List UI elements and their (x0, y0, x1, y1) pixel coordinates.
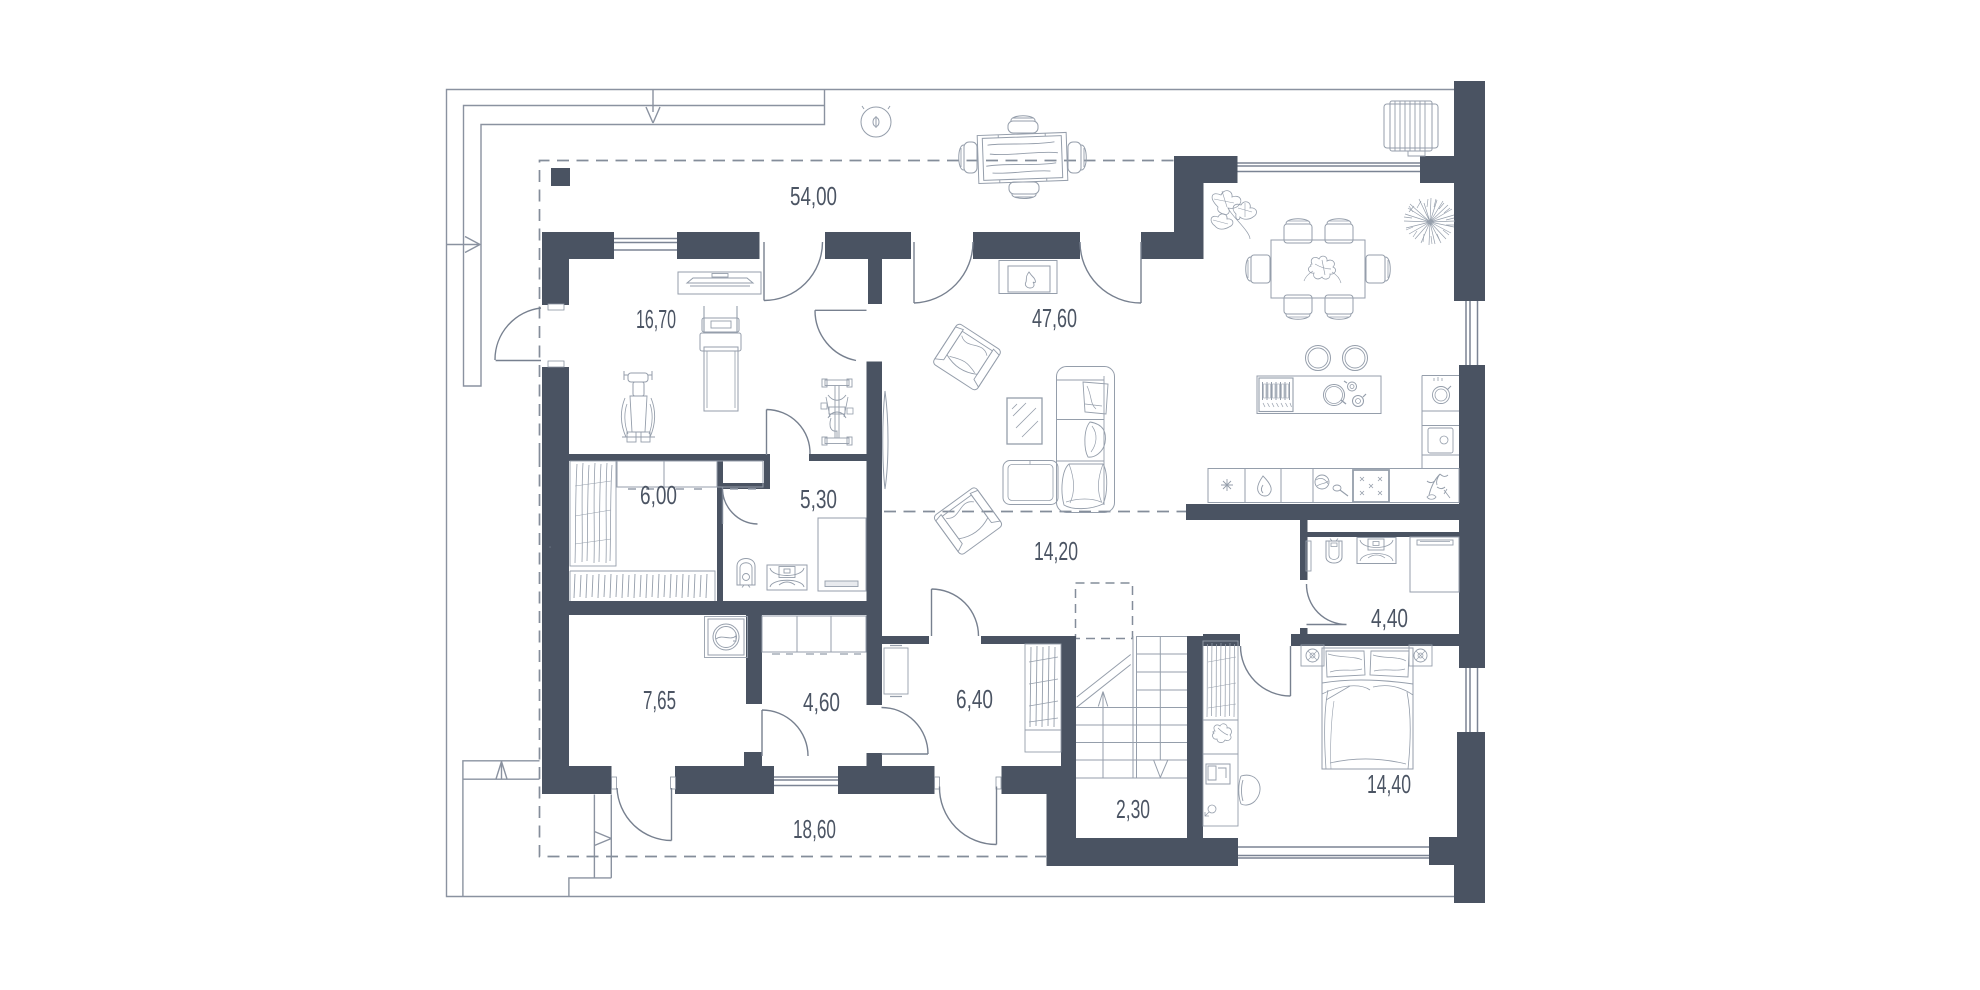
svg-text:14,20: 14,20 (1034, 536, 1078, 566)
svg-text:47,60: 47,60 (1032, 303, 1077, 333)
svg-text:4,40: 4,40 (1371, 603, 1408, 633)
svg-text:54,00: 54,00 (790, 181, 837, 211)
svg-text:16,70: 16,70 (636, 304, 676, 334)
svg-text:5,30: 5,30 (800, 484, 837, 514)
svg-text:2,30: 2,30 (1116, 794, 1150, 824)
svg-text:14,40: 14,40 (1367, 769, 1411, 799)
svg-text:7,65: 7,65 (643, 685, 676, 715)
svg-text:6,00: 6,00 (640, 480, 677, 510)
svg-text:4,60: 4,60 (803, 687, 840, 717)
svg-text:18,60: 18,60 (793, 814, 836, 844)
svg-text:6,40: 6,40 (956, 684, 993, 714)
